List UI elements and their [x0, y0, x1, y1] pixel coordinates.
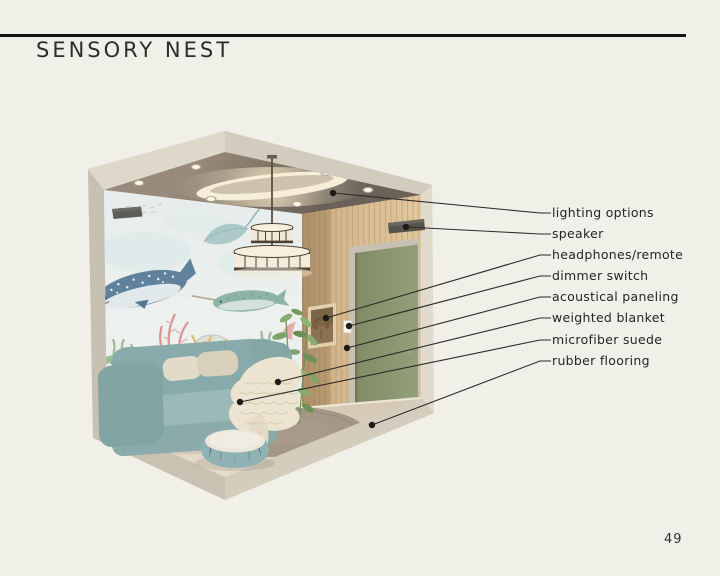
label-acoustical-paneling: acoustical paneling	[552, 289, 679, 305]
label-rubber-flooring: rubber flooring	[552, 353, 650, 369]
wood-wall	[300, 190, 425, 412]
label-speaker: speaker	[552, 226, 604, 242]
door	[349, 238, 420, 407]
label-dimmer-switch: dimmer switch	[552, 268, 648, 284]
page: { "page": { "title": "SENSORY NEST", "pa…	[0, 0, 720, 576]
label-headphones-remote: headphones/remote	[552, 247, 683, 263]
sofa	[98, 339, 302, 456]
label-lighting-options: lighting options	[552, 205, 654, 221]
room-illustration	[0, 0, 720, 576]
pendant-top-tier	[251, 224, 293, 244]
label-weighted-blanket: weighted blanket	[552, 310, 665, 326]
label-microfiber-suede: microfiber suede	[552, 332, 662, 348]
page-number: 49	[664, 532, 683, 547]
pendant-bottom-tier	[232, 246, 312, 280]
